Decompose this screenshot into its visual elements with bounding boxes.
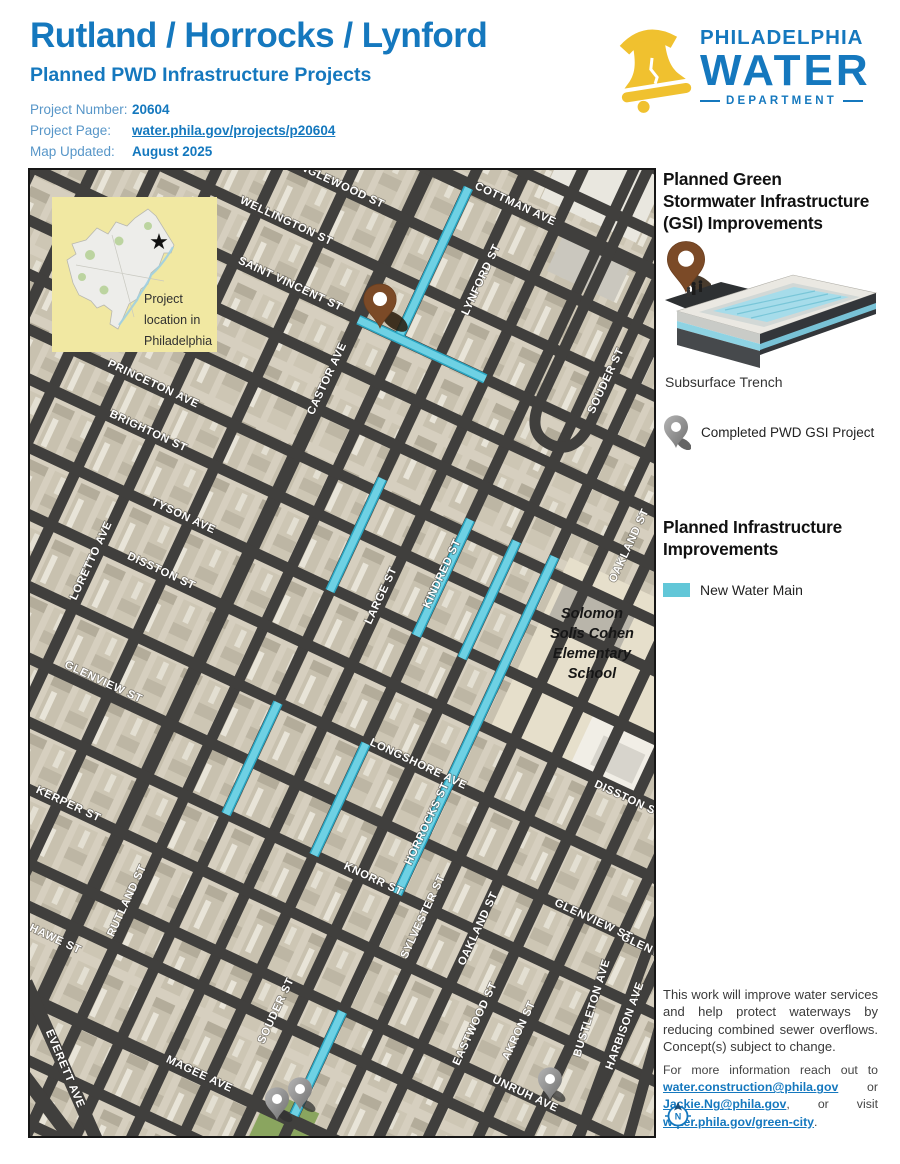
project-meta: Project Number:20604 Project Page:water.…	[30, 99, 335, 162]
project-map: ENGLEWOOD STCOTTMAN AVEWELLINGTON STSAIN…	[28, 168, 656, 1138]
completed-gsi-pin-icon	[663, 414, 691, 450]
meta-label: Project Page:	[30, 120, 132, 141]
note-text: .	[814, 1115, 817, 1129]
meta-map-updated: Map Updated:August 2025	[30, 141, 335, 162]
inset-caption-line: Philadelphia	[144, 334, 212, 348]
project-note: This work will improve water services an…	[663, 986, 878, 1055]
legend-sidebar: Planned Green Stormwater Infrastructure …	[663, 168, 878, 1134]
infrastructure-heading: Planned Infrastructure Improvements	[663, 516, 878, 560]
completed-gsi-legend-row: Completed PWD GSI Project	[663, 414, 874, 450]
school-label-line: Solomon	[561, 606, 623, 622]
note-text: For more information reach out to	[663, 1063, 878, 1077]
meta-value: August 2025	[132, 144, 212, 159]
note-text: , or visit	[786, 1097, 878, 1111]
inset-caption-line: Project	[144, 292, 183, 306]
trench-caption: Subsurface Trench	[665, 374, 783, 390]
meta-project-number: Project Number:20604	[30, 99, 335, 120]
subsurface-trench-illustration	[663, 264, 878, 374]
dash-left	[700, 100, 720, 103]
logo-department-row: DEPARTMENT	[700, 95, 880, 107]
school-label-line: Solis Cohen	[550, 626, 634, 642]
water-main-legend-row: New Water Main	[663, 582, 803, 598]
email-link-construction[interactable]: water.construction@phila.gov	[663, 1080, 838, 1094]
logo-water: WATER	[700, 50, 880, 92]
meta-label: Map Updated:	[30, 141, 132, 162]
logo-department: DEPARTMENT	[726, 95, 837, 107]
gsi-heading: Planned Green Stormwater Infrastructure …	[663, 168, 878, 234]
north-compass-icon: N	[663, 1100, 693, 1130]
meta-label: Project Number:	[30, 99, 132, 120]
completed-gsi-label: Completed PWD GSI Project	[701, 425, 874, 440]
meta-value: 20604	[132, 102, 170, 117]
water-main-swatch	[663, 583, 690, 597]
project-location-star: ★	[149, 229, 169, 254]
meta-project-page: Project Page:water.phila.gov/projects/p2…	[30, 120, 335, 141]
pwd-project-map-page: Rutland / Horrocks / Lynford Planned PWD…	[0, 0, 900, 1164]
note-text: or	[838, 1080, 878, 1094]
inset-caption-line: location in	[144, 313, 200, 327]
page-title: Rutland / Horrocks / Lynford	[30, 16, 487, 56]
school-label-line: School	[568, 666, 617, 682]
school-label-line: Elementary	[553, 646, 632, 662]
dash-right	[843, 100, 863, 103]
liberty-bell-icon	[608, 14, 696, 114]
contact-note: For more information reach out to water.…	[663, 1062, 878, 1131]
compass-n-letter: N	[675, 1112, 682, 1122]
project-page-link[interactable]: water.phila.gov/projects/p20604	[132, 123, 335, 138]
pwd-logo: PHILADELPHIA WATER DEPARTMENT	[700, 26, 880, 107]
water-main-label: New Water Main	[700, 582, 803, 598]
page-subtitle: Planned PWD Infrastructure Projects	[30, 64, 371, 87]
inset-map: ★ Projectlocation inPhiladelphia	[52, 197, 217, 352]
